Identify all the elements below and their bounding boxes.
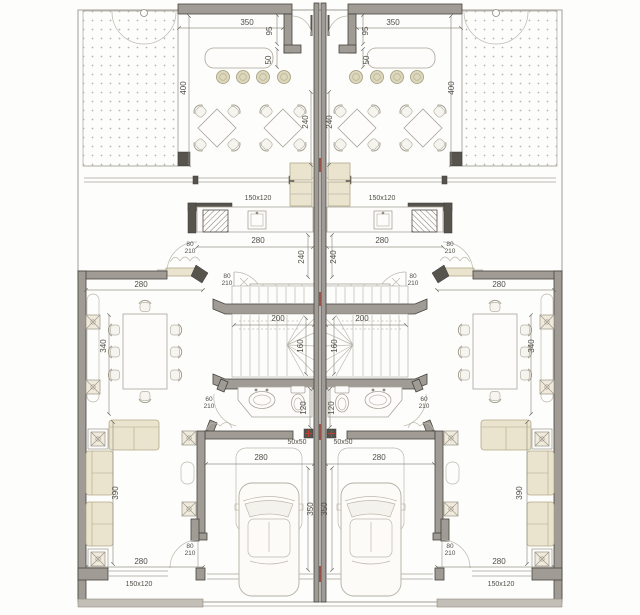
tap-icon [383,389,386,392]
wash-basin [249,392,275,409]
front-garden [462,10,557,167]
dim-living-width-right: 280 [492,557,506,566]
appliance [290,163,312,180]
terrace-post [178,152,190,166]
dim-stair-depth-left: 160 [296,339,305,353]
plant-box-icon [182,502,196,516]
bar-stool-icon [391,71,404,84]
dim-kitchen-width-right: 280 [375,236,389,245]
car [235,483,303,596]
dim-dining-width-left: 280 [134,280,148,289]
garden-gravel-area [83,11,178,166]
dim-terrace-depth-right: 400 [447,81,456,95]
kitchen-wall-corner [444,203,452,233]
tap-icon [266,389,269,392]
window-rear-right: 150x120 [488,581,515,588]
living-top-wall [473,271,562,279]
living-left-wall [78,271,86,600]
dining-table [473,314,517,389]
plant-box-icon [444,431,458,445]
garden-gravel-area [462,11,557,166]
garage-side-wall [197,431,205,533]
gate-post-icon [493,10,500,17]
dim-garage-width-right: 280 [372,453,386,462]
faucet-icon [256,212,259,215]
appliance [328,163,350,180]
car [337,483,405,596]
floor-plan-page: 3509550400240150x12028080210240802102802… [0,0,640,615]
living-left-wall [554,271,562,600]
front-garden [83,10,178,167]
dim-garage-depth-right: 350 [320,502,329,516]
bar-stool-icon [350,71,363,84]
dim-dining-depth-left: 340 [99,339,108,353]
dim-corridor-left: 240 [297,250,306,264]
window-jamb [193,176,198,184]
bar-counter [367,48,435,68]
vestibule-wall-horizontal [284,45,301,53]
gate-post-icon [141,10,148,17]
plant-box-icon [540,315,554,329]
dim-dining-width-right: 280 [492,280,506,289]
bar-stool-icon [278,71,291,84]
dim-toilet-left: 120 [299,401,308,415]
dim-kitchen-width-left: 280 [251,236,265,245]
wall-stub [191,519,199,541]
rear-wall-left [78,568,108,580]
garage-top-wall [347,431,435,439]
rear-wall-stub [435,568,444,580]
stove [412,210,437,232]
terrace-post [450,152,462,166]
dim-toilet-right: 120 [327,401,336,415]
bar-stool-icon [217,71,230,84]
dining-table [123,314,167,389]
column-size-right: 50x50 [333,439,352,446]
dim-stair-width-left: 200 [271,314,285,323]
dim-living-depth-left: 390 [111,486,120,500]
floor-plan-canvas: 3509550400240150x12028080210240802102802… [0,0,640,615]
column-marker [327,429,336,438]
dim-garage-width-left: 280 [254,453,268,462]
dim-terrace-width-right: 350 [386,18,400,27]
dim-stair-depth-right: 160 [330,339,339,353]
terrace-table-group [398,103,448,153]
window-kitchen-left: 150x120 [245,195,272,202]
garage-side-wall [435,431,443,533]
dim-living-width-left: 280 [134,557,148,566]
plant-box-icon [91,432,105,446]
garage-top-wall [205,431,293,439]
dim-vestibule-depth-left: 95 [265,26,274,35]
bar-stool-icon [371,71,384,84]
street-wall-segment [437,599,562,607]
front-wall [178,4,292,14]
wall-stub [441,519,449,541]
toilet-tank [335,386,349,393]
dim-terrace-seating-right: 240 [325,115,334,129]
dim-stair-width-right: 200 [355,314,369,323]
rear-wall-left [532,568,562,580]
window-rear-left: 150x120 [126,581,153,588]
dim-living-depth-right: 390 [515,486,524,500]
window-kitchen-right: 150x120 [369,195,396,202]
stair-upper-flight [324,286,408,304]
toilet-tank [291,386,305,393]
bar-stool-icon [237,71,250,84]
bar-stool-icon [257,71,270,84]
stair-upper-flight [232,286,316,304]
bar-stool-icon [411,71,424,84]
street-wall-segment [78,599,203,607]
front-wall [348,4,462,14]
wash-basin [365,392,391,409]
kitchen-wall-corner [188,203,196,233]
tap-icon [255,389,258,392]
dim-terrace-depth-left: 400 [179,81,188,95]
terrace-table-group [192,103,242,153]
living-top-wall [78,271,167,279]
bar-counter [205,48,273,68]
rear-wall-stub [196,568,205,580]
plant-box-icon [444,502,458,516]
column-size-left: 50x50 [287,439,306,446]
terrace-table-group [332,103,382,153]
plant-box-icon [182,431,196,445]
dim-counter-depth-right: 50 [362,55,371,64]
faucet-icon [382,212,385,215]
plant-box-icon [91,552,105,566]
plant-box-icon [540,380,554,394]
stove [203,210,228,232]
column-marker [304,429,313,438]
vestibule-wall-horizontal [339,45,356,53]
dim-terrace-seating-left: 240 [301,115,310,129]
dim-terrace-width-left: 350 [240,18,254,27]
plant-box-icon [535,432,549,446]
dim-vestibule-depth-right: 95 [361,26,370,35]
plant-box-icon [86,380,100,394]
dim-corridor-right: 240 [329,250,338,264]
dim-garage-depth-left: 350 [306,502,315,516]
plant-box-icon [535,552,549,566]
toilet [336,394,349,412]
window-jamb [442,176,447,184]
dim-counter-depth-left: 50 [264,55,273,64]
dim-dining-depth-right: 340 [527,339,536,353]
tap-icon [372,389,375,392]
plant-box-icon [86,315,100,329]
